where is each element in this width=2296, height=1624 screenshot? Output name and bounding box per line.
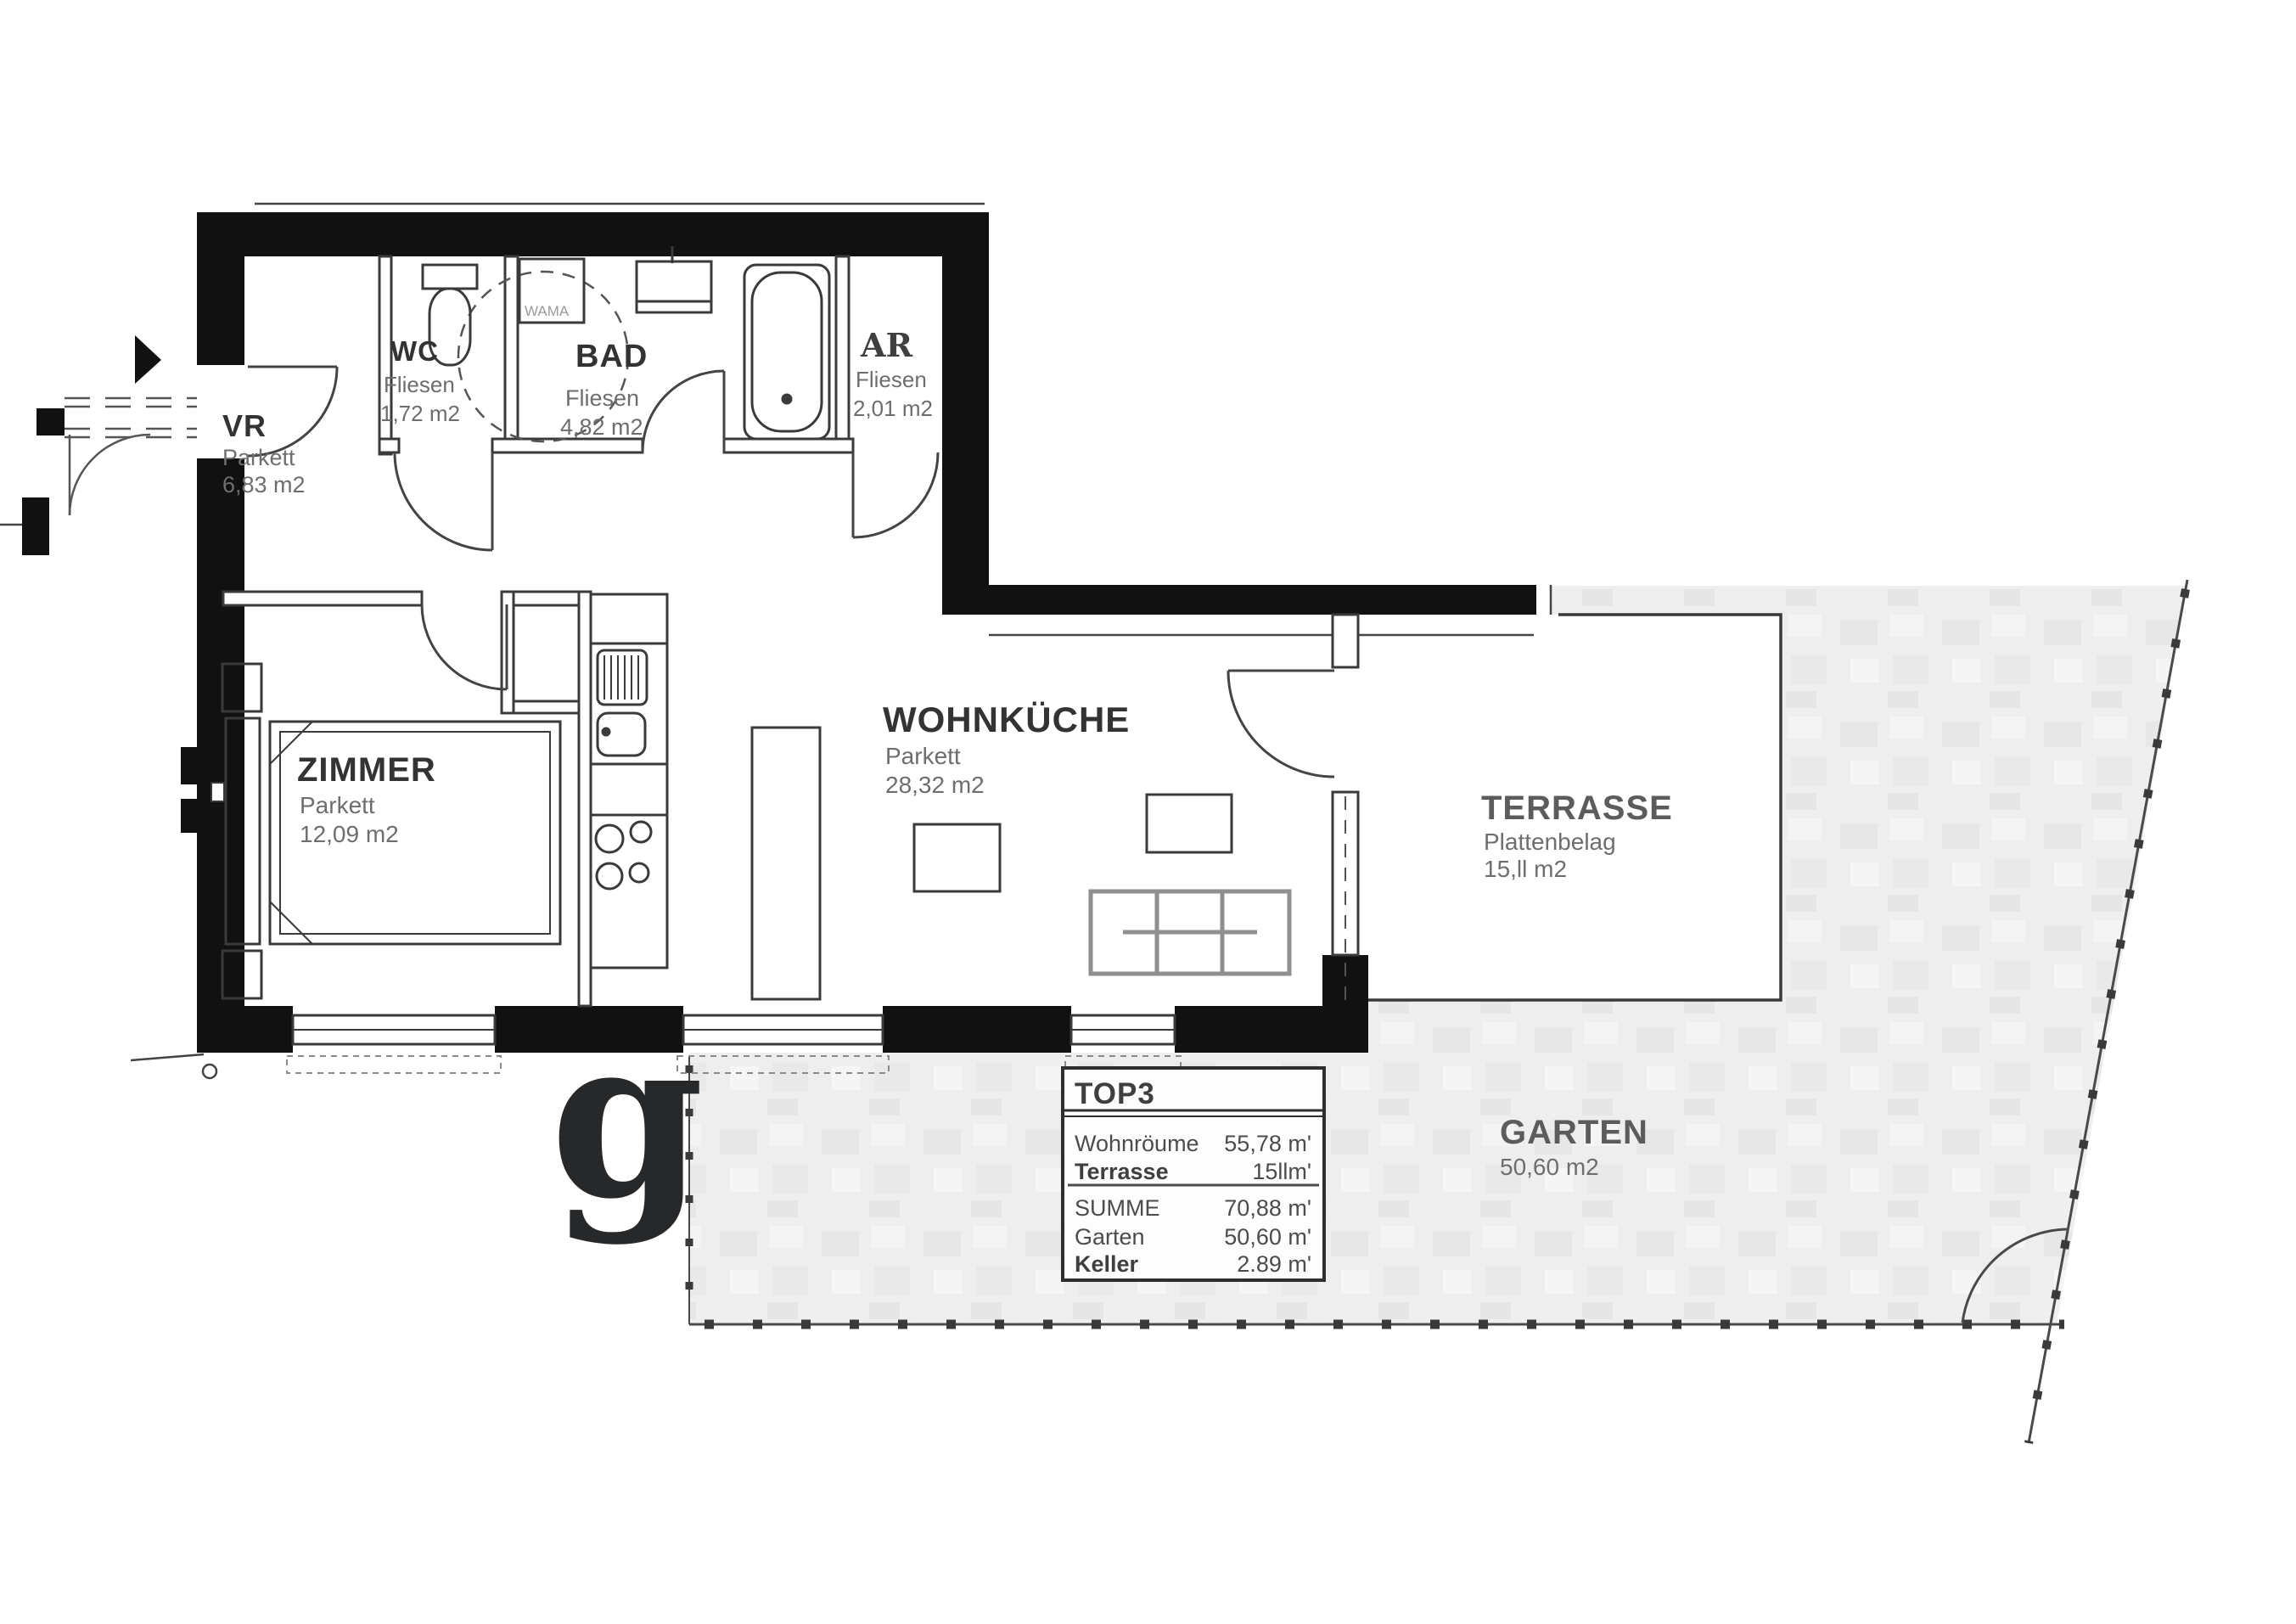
wall-bottom-seg4 — [1175, 1006, 1368, 1053]
sink-tap-icon — [603, 728, 609, 735]
room-area-ar: 2,01 m2 — [853, 396, 933, 421]
room-floor-ar: Fliesen — [856, 367, 927, 392]
room-label-bad: BAD — [575, 339, 648, 374]
table-row-label: Wohnröume — [1075, 1131, 1199, 1156]
dining-table — [914, 824, 1000, 891]
room-label-garten: GARTEN — [1500, 1114, 1648, 1151]
table-row-value: 2.89 m' — [1237, 1251, 1311, 1277]
wall-left-upper — [197, 212, 244, 365]
room-area-garten: 50,60 m2 — [1500, 1154, 1599, 1180]
bad-door-arc — [643, 371, 724, 452]
wall-nub-left1 — [181, 747, 198, 784]
wall-top — [197, 212, 989, 256]
wall-bad-ar — [836, 256, 849, 452]
zimmer-door-arc — [422, 604, 507, 689]
garden-area — [689, 586, 2187, 1324]
watermark-letter: g — [550, 989, 705, 1248]
wall-kitchen — [579, 592, 591, 1006]
room-area-zimmer: 12,09 m2 — [300, 821, 399, 847]
toilet-cistern — [423, 265, 477, 289]
room-floor-wohnkueche: Parkett — [885, 743, 961, 769]
wall-vr-zimmer — [223, 592, 422, 605]
room-floor-zimmer: Parkett — [300, 792, 375, 818]
room-area-terrasse: 15,ll m2 — [1484, 856, 1567, 882]
exterior-pier — [22, 497, 49, 555]
survey-point — [203, 1065, 216, 1078]
room-area-wohnkueche: 28,32 m2 — [885, 772, 985, 798]
exterior-corridor — [0, 335, 197, 555]
wall-band-c — [724, 439, 853, 452]
coffee-table — [1147, 795, 1232, 852]
wall-band-a — [379, 439, 399, 452]
stove-burner — [630, 863, 648, 882]
table-row-label: Keller — [1075, 1251, 1139, 1277]
room-label-ar: AR — [860, 326, 912, 364]
floor-plan-drawing: WC Fliesen 1,72 m2 BAD Fliesen 4,82 m2 A… — [0, 0, 2296, 1624]
stove-burner — [631, 822, 651, 842]
entrance-arrow-icon — [135, 335, 161, 384]
terrace-door-arc — [1228, 671, 1334, 777]
wall-band-b — [492, 439, 643, 452]
bed-pillow-mark — [270, 902, 312, 944]
table-row-value: 70,88 m' — [1224, 1195, 1311, 1221]
room-label-zimmer: ZIMMER — [297, 751, 436, 789]
ground-line — [131, 1054, 204, 1060]
washbasin — [637, 261, 711, 312]
table-row-label: SUMME — [1075, 1195, 1160, 1221]
ar-door-arc — [853, 452, 938, 537]
wall-bottom-seg1 — [197, 1006, 293, 1053]
wall-right-upper — [942, 212, 989, 586]
table-row-value: 55,78 m' — [1224, 1131, 1311, 1156]
wall-bottom-seg3 — [883, 1006, 1071, 1053]
tall-cabinet — [752, 728, 820, 999]
sofa — [1091, 891, 1289, 974]
stove-burner — [597, 863, 622, 889]
wall-wc-bad — [505, 256, 518, 452]
doors — [248, 367, 1334, 777]
stove-burner — [596, 825, 623, 852]
bathtub-drain — [783, 395, 791, 403]
interior-walls — [223, 256, 853, 1006]
exterior-wall-stub — [36, 408, 65, 436]
table-row-value: 50,60 m' — [1224, 1224, 1311, 1250]
wall-upper-right-horizontal — [942, 585, 1536, 615]
kitchen-fixtures — [591, 594, 667, 968]
wall-nub-left2 — [181, 799, 198, 833]
wc-door-arc — [395, 452, 492, 550]
room-area-bad: 4,82 m2 — [560, 414, 643, 440]
wall-left-lower — [197, 458, 244, 1006]
glazing-upper — [1333, 615, 1358, 667]
room-area-wc: 1,72 m2 — [380, 401, 460, 426]
room-floor-bad: Fliesen — [565, 385, 639, 411]
bathtub-outer — [744, 265, 829, 439]
window-sill — [287, 1056, 501, 1073]
room-area-vr: 6,83 m2 — [222, 472, 306, 497]
room-label-terrasse: TERRASSE — [1481, 790, 1673, 827]
bathtub-inner — [752, 273, 822, 431]
window-left-notch — [211, 783, 224, 801]
room-floor-vr: Parkett — [222, 445, 295, 470]
table-row-label: Terrasse — [1075, 1159, 1169, 1184]
floor-plan-page: WC Fliesen 1,72 m2 BAD Fliesen 4,82 m2 A… — [0, 0, 2296, 1624]
room-label-wohnkueche: WOHNKÜCHE — [883, 700, 1130, 739]
summary-table: TOP3 Wohnröume 55,78 m' Terrasse 15llm' … — [1063, 1068, 1324, 1280]
room-floor-terrasse: Plattenbelag — [1484, 829, 1616, 855]
room-label-vr: VR — [222, 408, 267, 443]
table-row-value: 15llm' — [1252, 1159, 1311, 1184]
table-row-label: Garten — [1075, 1224, 1145, 1250]
table-title: TOP3 — [1075, 1077, 1155, 1110]
room-floor-wc: Fliesen — [384, 372, 455, 397]
exterior-door-arc — [70, 435, 150, 515]
room-label-wc: WC — [390, 335, 439, 367]
washing-machine-label: WAMA — [525, 303, 570, 319]
